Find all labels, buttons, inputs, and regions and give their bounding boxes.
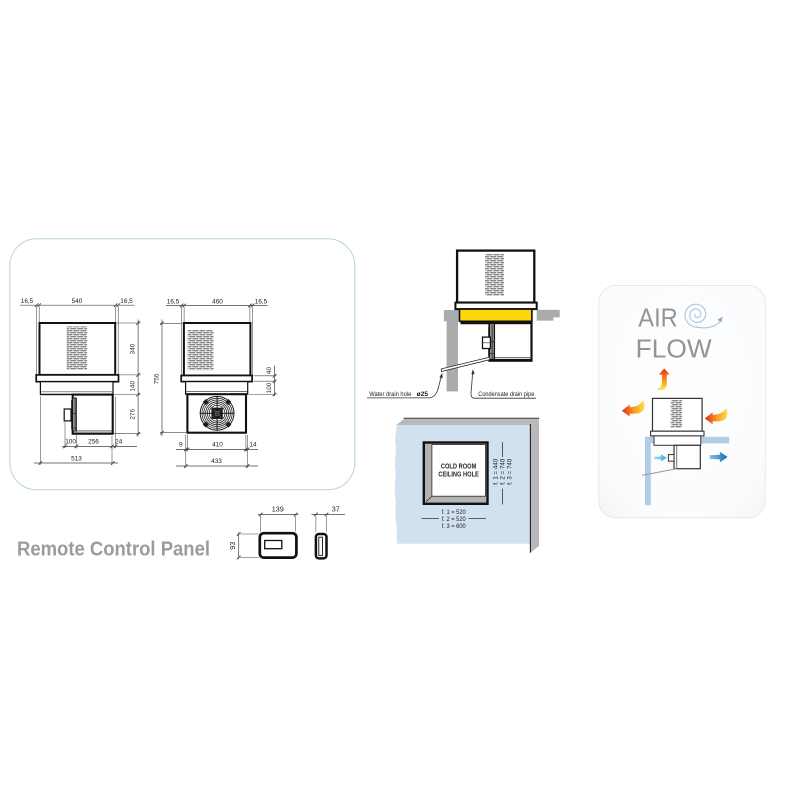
svg-text:433: 433: [211, 458, 222, 465]
svg-text:FLOW: FLOW: [636, 333, 712, 363]
svg-text:16,5: 16,5: [21, 298, 34, 305]
svg-text:14: 14: [249, 441, 257, 448]
svg-text:9: 9: [179, 441, 183, 448]
svg-text:40: 40: [266, 367, 273, 375]
svg-text:Remote Control Panel: Remote Control Panel: [17, 539, 210, 561]
svg-text:16,5: 16,5: [167, 298, 180, 305]
svg-text:410: 410: [212, 441, 223, 448]
svg-text:AIR: AIR: [638, 303, 678, 333]
svg-text:540: 540: [72, 298, 83, 305]
svg-text:Condensate drain pipe: Condensate drain pipe: [478, 391, 534, 398]
svg-text:f. 1 = 440: f. 1 = 440: [492, 459, 499, 485]
svg-text:ø25: ø25: [417, 391, 429, 398]
svg-text:Water drain hole: Water drain hole: [369, 391, 411, 398]
svg-text:16,5: 16,5: [255, 298, 268, 305]
svg-text:139: 139: [272, 504, 284, 513]
svg-text:f. 2 = 740: f. 2 = 740: [499, 459, 506, 485]
svg-text:256: 256: [88, 439, 99, 446]
svg-text:340: 340: [130, 343, 137, 354]
svg-text:276: 276: [130, 409, 137, 420]
svg-text:f. 2 = 520: f. 2 = 520: [442, 516, 467, 523]
svg-text:24: 24: [115, 439, 123, 446]
svg-text:756: 756: [154, 373, 161, 384]
svg-text:460: 460: [212, 298, 223, 305]
svg-text:f. 3 = 740: f. 3 = 740: [506, 459, 513, 485]
svg-text:93: 93: [228, 542, 237, 550]
svg-text:f. 1 = 520: f. 1 = 520: [442, 509, 467, 516]
svg-text:f. 3 = 600: f. 3 = 600: [442, 523, 467, 530]
svg-text:513: 513: [71, 455, 82, 462]
svg-text:100: 100: [65, 439, 76, 446]
svg-text:140: 140: [130, 381, 137, 392]
svg-text:37: 37: [332, 504, 340, 513]
svg-text:16,5: 16,5: [120, 298, 133, 305]
svg-text:CEILING HOLE: CEILING HOLE: [438, 469, 479, 478]
svg-text:100: 100: [266, 382, 273, 393]
